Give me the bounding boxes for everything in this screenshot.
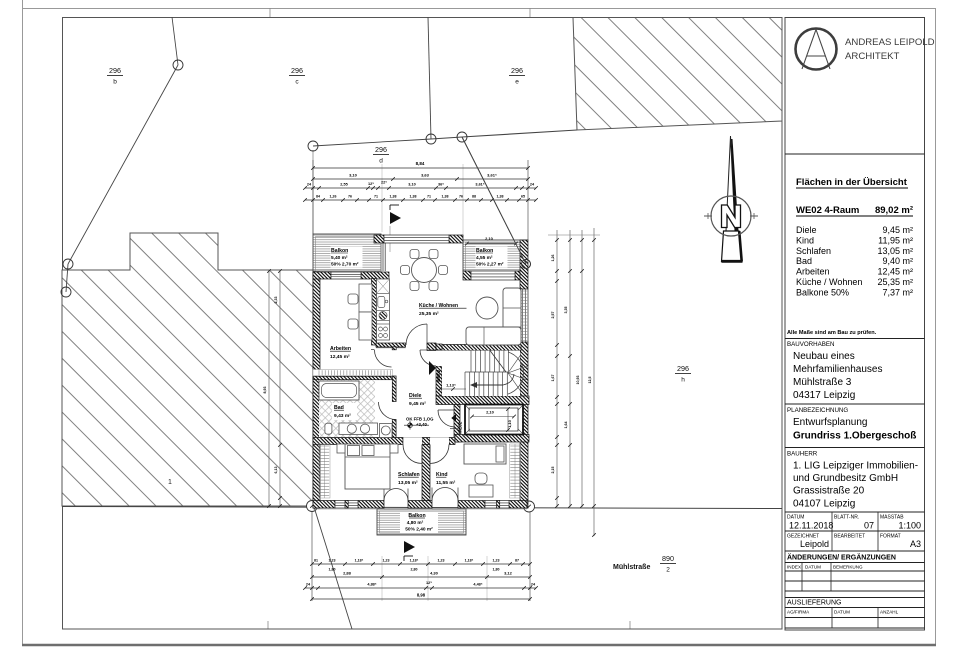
svg-text:1,18⁵: 1,18⁵ xyxy=(355,559,364,563)
svg-text:INDEX: INDEX xyxy=(787,565,801,570)
svg-text:AG/FIRMA: AG/FIRMA xyxy=(787,610,810,615)
svg-text:296: 296 xyxy=(677,364,689,373)
svg-text:Arbeiten: Arbeiten xyxy=(796,267,830,277)
svg-text:Diele: Diele xyxy=(796,225,817,235)
svg-text:1,26: 1,26 xyxy=(330,195,337,199)
svg-text:1,38: 1,38 xyxy=(442,195,449,199)
svg-text:22⁵: 22⁵ xyxy=(381,181,387,185)
svg-text:BEMERKUNG: BEMERKUNG xyxy=(833,565,863,570)
svg-text:13,05 m²: 13,05 m² xyxy=(877,246,913,256)
svg-text:87: 87 xyxy=(515,559,519,563)
svg-text:DATUM: DATUM xyxy=(834,610,850,615)
svg-text:FORMAT: FORMAT xyxy=(880,534,901,540)
svg-text:3,61⁵: 3,61⁵ xyxy=(475,183,484,187)
svg-text:12,45 m²: 12,45 m² xyxy=(330,354,350,360)
svg-text:36⁵: 36⁵ xyxy=(438,183,444,187)
svg-text:296: 296 xyxy=(375,145,387,154)
svg-text:3,61⁵: 3,61⁵ xyxy=(487,173,497,178)
svg-text:8,98: 8,98 xyxy=(417,593,426,598)
svg-text:1,23: 1,23 xyxy=(383,559,390,563)
svg-text:BAUVORHABEN: BAUVORHABEN xyxy=(787,341,834,348)
svg-text:Neubau eines: Neubau eines xyxy=(793,351,855,362)
svg-text:71: 71 xyxy=(374,195,378,199)
svg-text:04317 Leipzig: 04317 Leipzig xyxy=(793,390,855,401)
svg-text:2,10: 2,10 xyxy=(486,410,495,415)
svg-text:Grassistraße 20: Grassistraße 20 xyxy=(793,486,865,497)
svg-text:12.11.2018: 12.11.2018 xyxy=(789,521,833,531)
svg-text:e: e xyxy=(515,79,519,86)
svg-text:12⁵: 12⁵ xyxy=(426,581,432,585)
svg-text:5,40 m²: 5,40 m² xyxy=(331,255,348,261)
svg-text:9,45 m²: 9,45 m² xyxy=(409,401,426,407)
svg-text:3,63: 3,63 xyxy=(421,173,430,178)
svg-text:1,18⁵: 1,18⁵ xyxy=(410,559,419,563)
svg-text:10,93: 10,93 xyxy=(576,376,580,385)
svg-text:AUSLIEFERUNG: AUSLIEFERUNG xyxy=(787,600,841,607)
svg-text:1,38: 1,38 xyxy=(390,195,397,199)
svg-text:2,57: 2,57 xyxy=(551,312,555,319)
svg-text:2,15: 2,15 xyxy=(551,467,555,474)
svg-text:Entwurfsplanung: Entwurfsplanung xyxy=(793,417,868,428)
svg-text:1,38: 1,38 xyxy=(410,195,417,199)
svg-text:ÄNDERUNGEN/ ERGÄNZUNGEN: ÄNDERUNGEN/ ERGÄNZUNGEN xyxy=(787,554,896,562)
svg-text:WE02: WE02 xyxy=(436,369,441,382)
svg-text:A3: A3 xyxy=(910,539,921,549)
svg-text:9,43 m²: 9,43 m² xyxy=(334,413,351,419)
svg-text:1:100: 1:100 xyxy=(898,521,921,531)
svg-text:1,23: 1,23 xyxy=(493,559,500,563)
svg-text:1,67: 1,67 xyxy=(551,375,555,382)
svg-text:76: 76 xyxy=(348,195,352,199)
svg-text:Mühlstraße 3: Mühlstraße 3 xyxy=(793,377,852,388)
svg-text:3,10: 3,10 xyxy=(408,183,415,187)
svg-text:2,55: 2,55 xyxy=(340,183,347,187)
svg-text:81: 81 xyxy=(314,559,318,563)
svg-text:Leipold: Leipold xyxy=(800,539,829,549)
svg-text:1,80: 1,80 xyxy=(329,568,336,572)
svg-text:2,80: 2,80 xyxy=(411,568,418,572)
svg-text:BLATT-NR.: BLATT-NR. xyxy=(834,515,859,521)
svg-text:12,45 m²: 12,45 m² xyxy=(877,267,913,277)
svg-text:3,35: 3,35 xyxy=(564,307,568,314)
svg-text:2,88: 2,88 xyxy=(343,571,352,576)
svg-text:BAUHERR: BAUHERR xyxy=(787,451,818,458)
svg-text:1,23: 1,23 xyxy=(329,559,336,563)
svg-text:4,80 m²: 4,80 m² xyxy=(407,520,424,526)
svg-text:Küche / Wohnen: Küche / Wohnen xyxy=(796,277,862,287)
svg-text:2,33: 2,33 xyxy=(274,297,278,304)
svg-text:8,93: 8,93 xyxy=(263,387,267,394)
svg-text:WE02 4-Raum: WE02 4-Raum xyxy=(796,205,859,216)
svg-text:ANZAHL: ANZAHL xyxy=(880,610,899,615)
svg-text:296: 296 xyxy=(291,66,303,75)
svg-text:2,10: 2,10 xyxy=(485,236,494,241)
svg-text:76: 76 xyxy=(459,195,463,199)
svg-text:65: 65 xyxy=(521,195,525,199)
svg-text:Mehrfamilienhauses: Mehrfamilienhauses xyxy=(793,364,883,375)
svg-text:Kind: Kind xyxy=(796,235,814,245)
svg-text:ARCHITEKT: ARCHITEKT xyxy=(845,51,900,62)
svg-text:b: b xyxy=(113,79,117,86)
svg-text:6,13: 6,13 xyxy=(274,467,278,474)
svg-text:Grundriss 1.Obergeschoß: Grundriss 1.Obergeschoß xyxy=(793,431,916,442)
svg-text:OK FFB 1,OG: OK FFB 1,OG xyxy=(406,417,434,422)
svg-text:Mühlstraße: Mühlstraße xyxy=(613,564,650,571)
svg-text:4,55 m²: 4,55 m² xyxy=(476,255,493,261)
svg-text:12⁵: 12⁵ xyxy=(368,182,374,186)
svg-text:1,80: 1,80 xyxy=(493,568,500,572)
svg-text:1: 1 xyxy=(168,479,172,486)
svg-text:3,10: 3,10 xyxy=(349,173,358,178)
svg-text:890: 890 xyxy=(662,554,674,563)
svg-text:84: 84 xyxy=(316,195,320,199)
svg-text:1. LIG Leipziger Immobilien-: 1. LIG Leipziger Immobilien- xyxy=(793,461,918,472)
svg-text:Schlafen: Schlafen xyxy=(796,246,831,256)
svg-text:Alle Maße sind am Bau zu prüfe: Alle Maße sind am Bau zu prüfen. xyxy=(787,330,877,336)
svg-text:9,40 m²: 9,40 m² xyxy=(882,256,913,266)
svg-text:4,48⁵: 4,48⁵ xyxy=(473,583,482,587)
svg-text:4,30: 4,30 xyxy=(430,571,439,576)
svg-text:12,5: 12,5 xyxy=(588,377,592,384)
svg-text:50% 2,27 m²: 50% 2,27 m² xyxy=(476,262,504,268)
svg-text:7,37 m²: 7,37 m² xyxy=(882,287,913,297)
svg-text:4,88⁵: 4,88⁵ xyxy=(367,583,376,587)
svg-text:2: 2 xyxy=(666,567,670,574)
svg-text:1,13⁵: 1,13⁵ xyxy=(446,383,456,388)
svg-text:11,95 m²: 11,95 m² xyxy=(878,235,913,245)
svg-text:1,38: 1,38 xyxy=(497,195,504,199)
svg-text:DATUM: DATUM xyxy=(805,565,821,570)
svg-text:WE02: WE02 xyxy=(458,421,463,434)
svg-text:04107 Leipzig: 04107 Leipzig xyxy=(793,498,855,509)
svg-text:d: d xyxy=(379,158,383,165)
svg-text:ANDREAS LEIPOLD: ANDREAS LEIPOLD xyxy=(845,37,935,48)
svg-text:9,45 m²: 9,45 m² xyxy=(882,225,913,235)
svg-text:25,35 m²: 25,35 m² xyxy=(877,277,913,287)
svg-text:71: 71 xyxy=(427,195,431,199)
svg-text:50% 2,70 m²: 50% 2,70 m² xyxy=(331,262,359,268)
svg-text:1,26: 1,26 xyxy=(551,255,555,262)
svg-text:1,23: 1,23 xyxy=(438,559,445,563)
svg-text:296: 296 xyxy=(109,66,121,75)
svg-text:25,35 m²: 25,35 m² xyxy=(419,311,439,317)
svg-text:8,84: 8,84 xyxy=(416,161,425,166)
svg-text:h: h xyxy=(681,377,685,384)
svg-text:PLANBEZEICHNUNG: PLANBEZEICHNUNG xyxy=(787,407,848,414)
svg-text:Balkone 50%: Balkone 50% xyxy=(796,287,849,297)
svg-text:Flächen in der Übersicht: Flächen in der Übersicht xyxy=(796,177,908,188)
svg-text:07: 07 xyxy=(864,521,874,531)
svg-text:3,12: 3,12 xyxy=(504,571,513,576)
svg-text:50% 2,40 m²: 50% 2,40 m² xyxy=(405,527,433,533)
svg-text:und Grundbesitz GmbH: und Grundbesitz GmbH xyxy=(793,473,898,484)
svg-text:Bad: Bad xyxy=(796,256,812,266)
svg-text:296: 296 xyxy=(511,66,523,75)
svg-text:1,18⁵: 1,18⁵ xyxy=(465,559,474,563)
svg-text:89,02 m²: 89,02 m² xyxy=(875,205,913,216)
svg-text:88: 88 xyxy=(472,195,476,199)
svg-text:BEARBEITET: BEARBEITET xyxy=(834,534,865,540)
svg-text:11,55 m²: 11,55 m² xyxy=(436,480,456,486)
svg-text:+3,40: +3,40 xyxy=(416,422,427,427)
svg-text:13,05 m²: 13,05 m² xyxy=(398,480,418,486)
svg-text:1,64: 1,64 xyxy=(564,422,568,429)
